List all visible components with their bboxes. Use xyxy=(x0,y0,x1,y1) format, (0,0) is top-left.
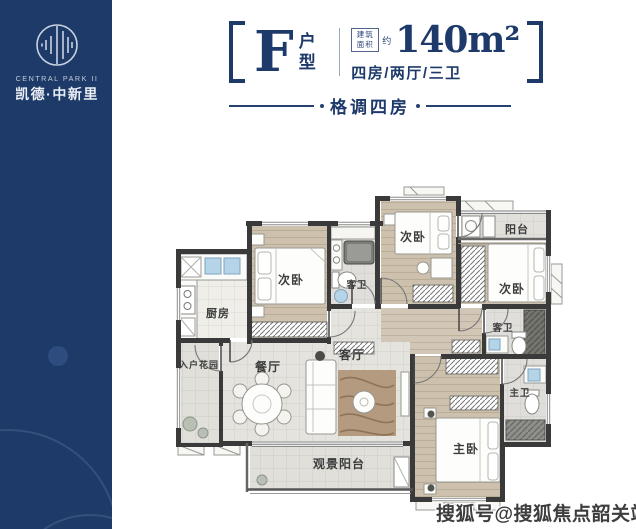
tagline-rule-left xyxy=(229,105,314,107)
room-label-living: 客厅 xyxy=(338,347,365,362)
tagline-row: 格调四房 xyxy=(229,93,511,118)
room-label-guest-bath-north: 客卫 xyxy=(345,279,367,291)
header-right: 建筑面积 约 140m² 四房/两厅/三卫 xyxy=(351,21,519,83)
brand-sidebar: CENTRAL PARK II 凯德·中新里 xyxy=(0,0,112,529)
sidebar-decor xyxy=(0,346,112,529)
room-label-master-bath: 主卫 xyxy=(509,387,530,399)
room-label-bedroom-east: 次卧 xyxy=(499,281,525,296)
room-label-bedroom-nw: 次卧 xyxy=(278,272,304,287)
unit-type-suffix: 户型 xyxy=(299,31,319,74)
unit-header: F 户型 建筑面积 约 140m² 四房/两厅/三卫 xyxy=(229,21,543,83)
header-divider xyxy=(339,28,341,76)
brand-name-cn: 凯德·中新里 xyxy=(15,86,99,102)
room-label-view-balcony: 观景阳台 xyxy=(313,456,365,471)
brand-logo-icon xyxy=(37,25,77,65)
area-value: 140m² xyxy=(395,21,519,59)
tagline-dot-right xyxy=(416,104,420,108)
rooms-summary: 四房/两厅/三卫 xyxy=(351,62,519,83)
room-label-balcony-north: 阳台 xyxy=(505,222,529,236)
area-approx-label: 约 xyxy=(382,34,391,47)
brand-name-en: CENTRAL PARK II xyxy=(16,74,99,83)
floorplan-page: CENTRAL PARK II 凯德·中新里 F 户型 建筑面积 约 140m²… xyxy=(0,0,636,529)
tagline-text: 格调四房 xyxy=(330,93,410,118)
watermark-text: 搜狐号@搜狐焦点韶关站 xyxy=(436,499,634,526)
room-label-entry-garden: 入户花园 xyxy=(178,359,219,370)
room-label-bedroom-north: 次卧 xyxy=(400,229,426,244)
bracket-left-decor xyxy=(229,21,245,83)
tagline-rule-right xyxy=(426,105,511,107)
floorplan-drawing: 厨房次卧客卫次卧阳台次卧客卫入户花园餐厅客厅主卫主卧观景阳台 xyxy=(150,160,636,514)
bracket-right-decor xyxy=(527,21,543,83)
room-label-kitchen: 厨房 xyxy=(206,306,230,320)
room-label-master-bedroom: 主卧 xyxy=(453,441,479,456)
tagline-dot-left xyxy=(320,104,324,108)
room-label-dining: 餐厅 xyxy=(255,359,281,374)
unit-type-letter: F xyxy=(254,24,294,80)
area-box-label: 建筑面积 xyxy=(351,28,379,52)
brand-sidebar-art: CENTRAL PARK II 凯德·中新里 xyxy=(0,0,112,529)
room-label-guest-bath-east: 客卫 xyxy=(491,322,513,334)
area-row: 建筑面积 约 140m² xyxy=(351,21,519,59)
